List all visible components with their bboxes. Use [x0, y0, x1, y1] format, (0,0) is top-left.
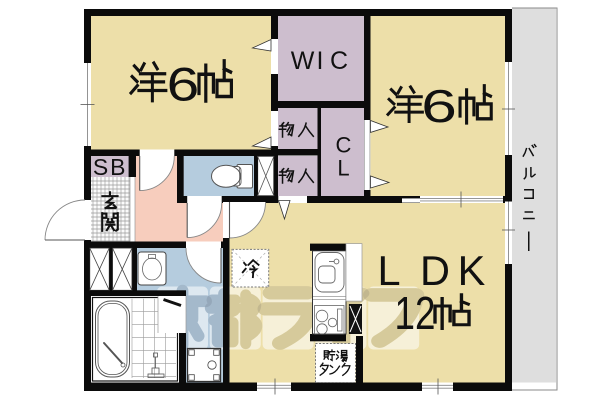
- svg-text:6: 6: [167, 59, 200, 111]
- svg-text:I: I: [317, 47, 324, 75]
- svg-text:6: 6: [421, 80, 457, 132]
- svg-text:W: W: [291, 47, 315, 75]
- svg-text:K: K: [458, 247, 486, 294]
- svg-text:C: C: [336, 133, 352, 158]
- svg-text:S: S: [93, 154, 108, 180]
- svg-text:C: C: [330, 47, 348, 75]
- svg-text:12: 12: [395, 287, 436, 339]
- svg-text:B: B: [110, 154, 125, 180]
- svg-text:L: L: [337, 156, 349, 181]
